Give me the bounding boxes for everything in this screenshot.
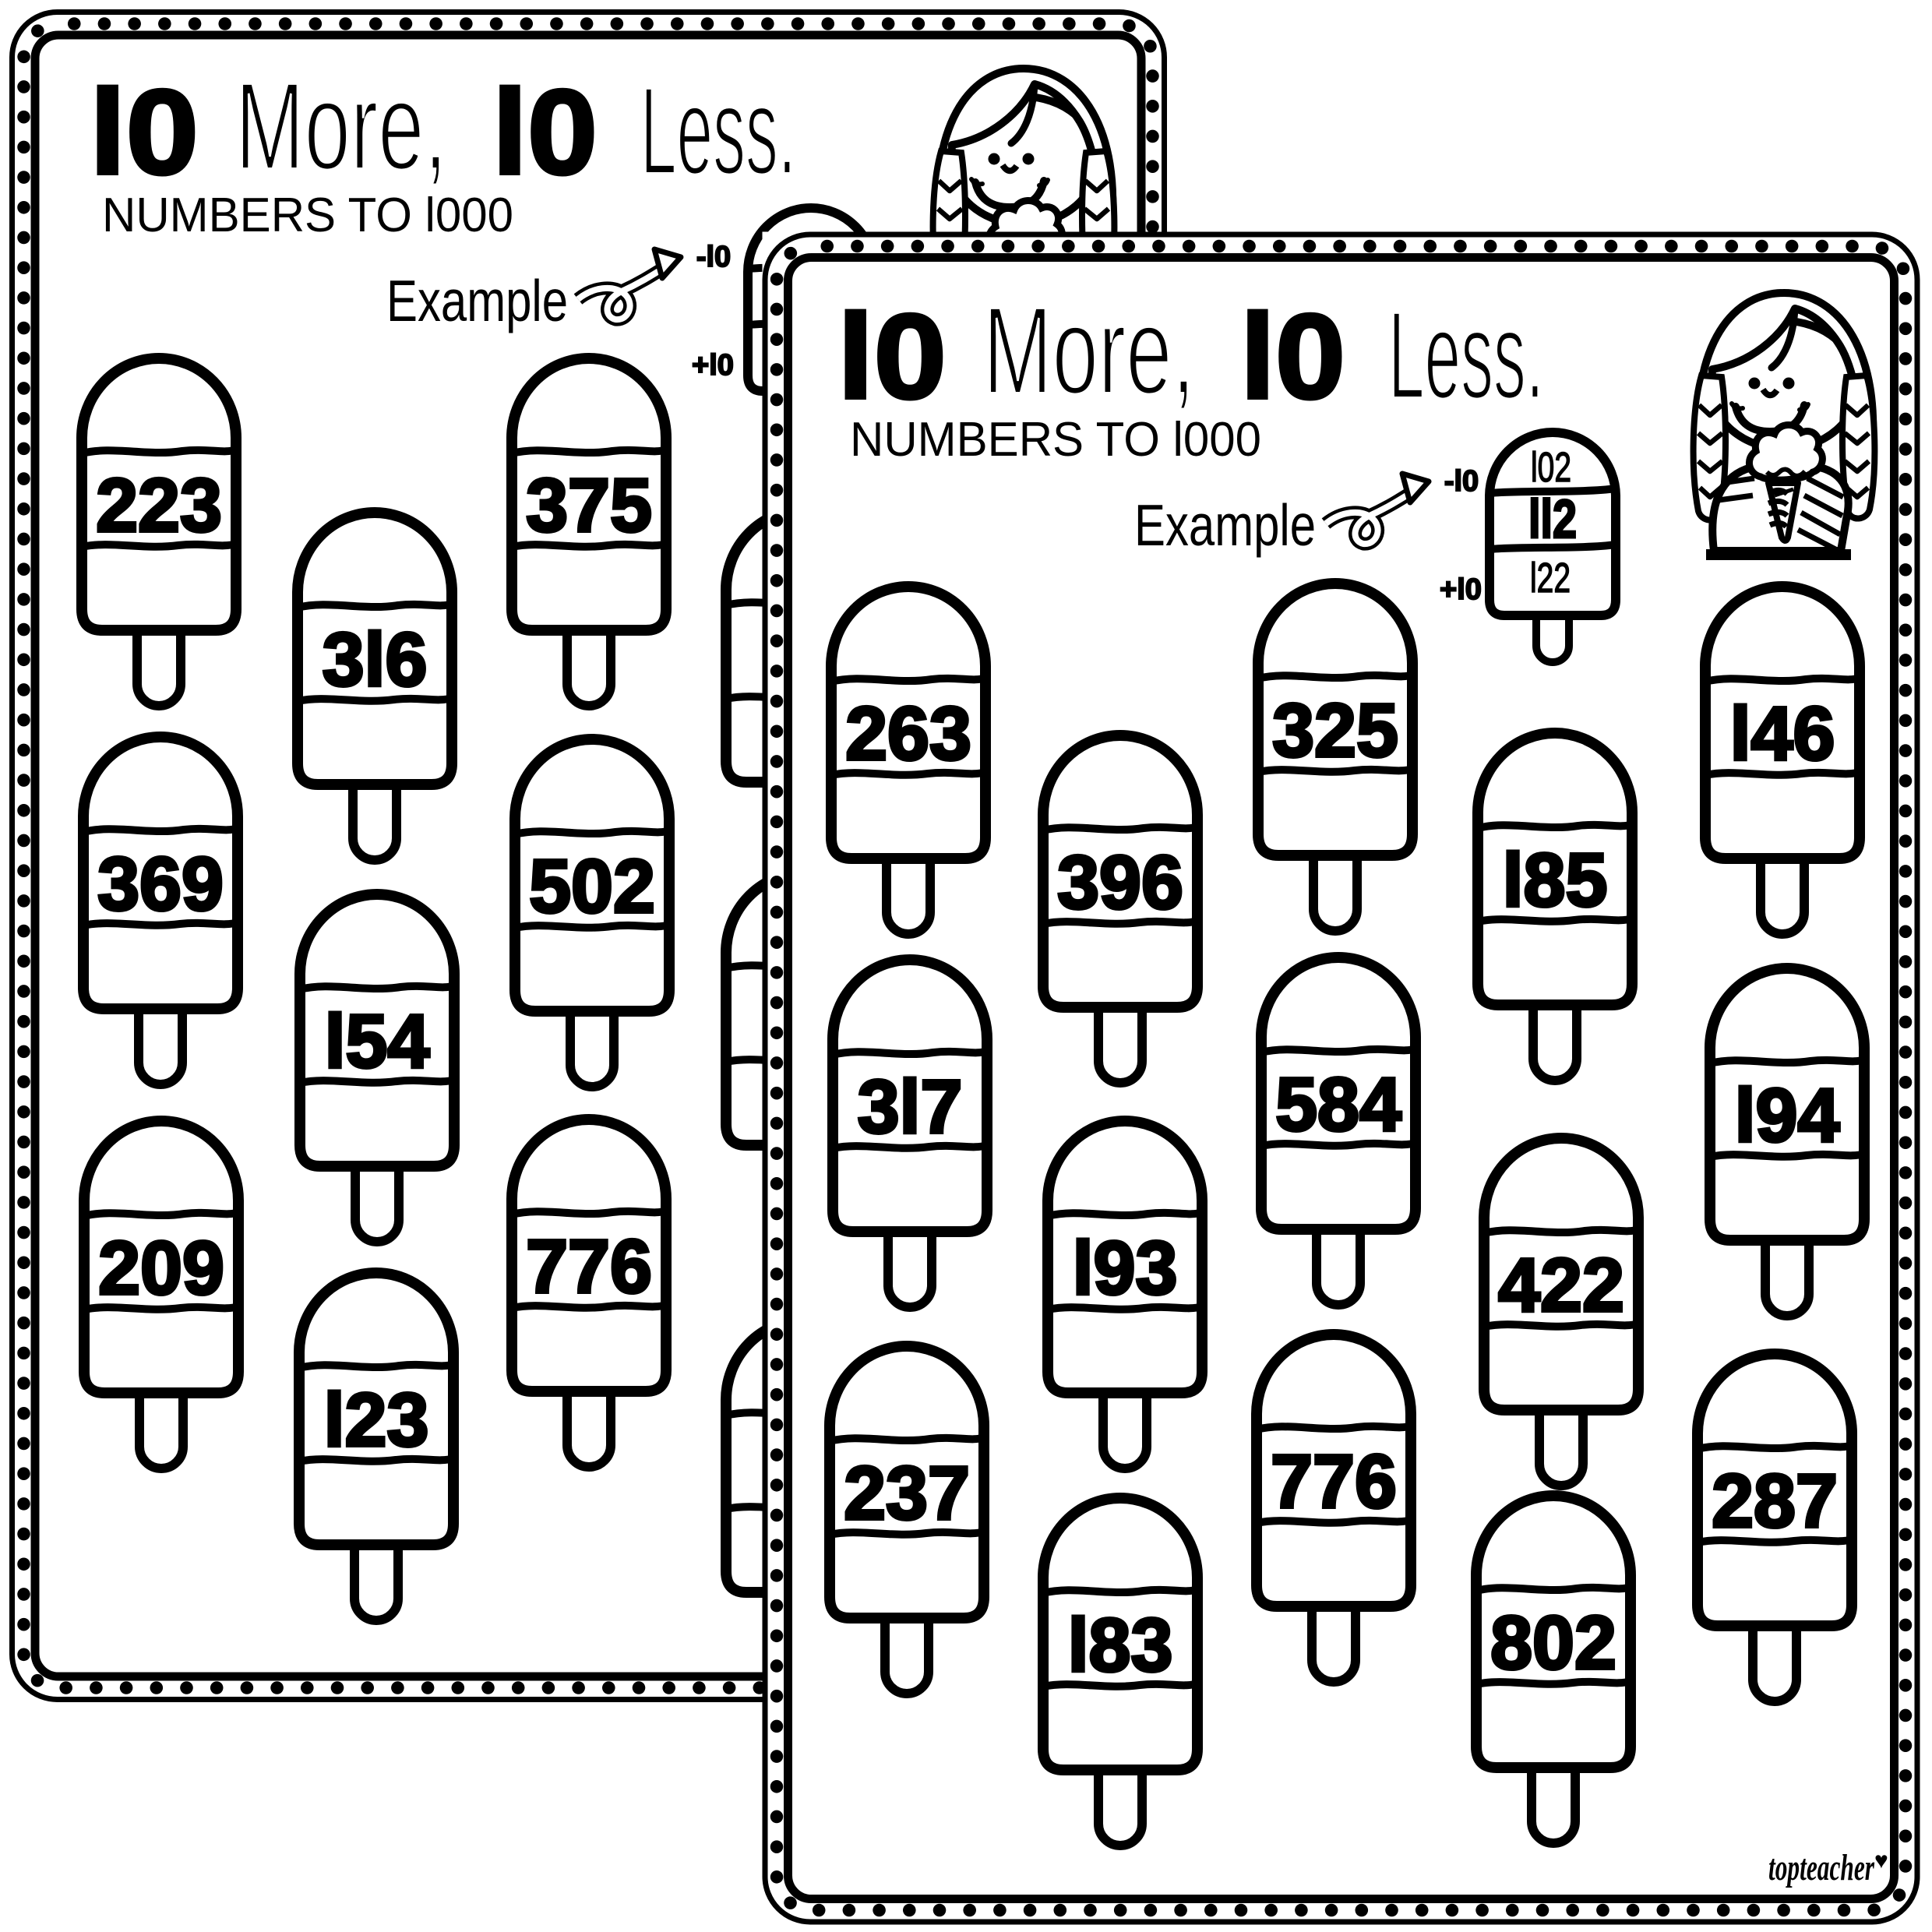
- svg-text:Less.: Less.: [640, 61, 796, 200]
- svg-text:-l0: -l0: [1444, 465, 1479, 498]
- svg-text:584: 584: [1275, 1062, 1401, 1147]
- svg-text:-l0: -l0: [696, 241, 731, 273]
- svg-text:+l0: +l0: [1440, 573, 1482, 606]
- svg-text:l54: l54: [325, 999, 430, 1084]
- svg-text:l23: l23: [324, 1377, 429, 1462]
- svg-text:Example: Example: [1134, 492, 1316, 558]
- svg-text:375: 375: [526, 463, 652, 548]
- svg-text:287: 287: [1712, 1458, 1838, 1543]
- svg-text:+l0: +l0: [692, 349, 734, 382]
- svg-text:3l7: 3l7: [858, 1064, 963, 1149]
- svg-text:l0: l0: [492, 65, 598, 199]
- svg-text:l22: l22: [1530, 555, 1571, 601]
- svg-text:3l6: 3l6: [323, 617, 428, 702]
- svg-text:l85: l85: [1503, 837, 1608, 922]
- svg-text:396: 396: [1057, 840, 1183, 925]
- svg-text:802: 802: [1490, 1600, 1616, 1685]
- svg-text:NUMBERS TO l000: NUMBERS TO l000: [850, 413, 1261, 467]
- svg-text:422: 422: [1498, 1243, 1624, 1327]
- svg-text:Less.: Less.: [1388, 285, 1544, 425]
- svg-text:l02: l02: [1531, 444, 1571, 491]
- svg-text:l83: l83: [1068, 1602, 1173, 1687]
- svg-text:l93: l93: [1073, 1225, 1178, 1310]
- svg-text:502: 502: [529, 844, 655, 929]
- svg-text:l0: l0: [90, 65, 199, 199]
- svg-text:More,: More,: [983, 280, 1195, 420]
- svg-text:l0: l0: [1240, 289, 1345, 424]
- svg-text:776: 776: [526, 1224, 652, 1309]
- svg-text:325: 325: [1272, 688, 1398, 773]
- svg-text:237: 237: [844, 1451, 970, 1535]
- svg-text:l46: l46: [1730, 691, 1835, 776]
- svg-text:l94: l94: [1735, 1073, 1840, 1158]
- svg-text:263: 263: [845, 691, 971, 776]
- svg-text:209: 209: [98, 1225, 224, 1310]
- svg-text:NUMBERS TO l000: NUMBERS TO l000: [102, 189, 513, 242]
- svg-text:l0: l0: [837, 289, 947, 424]
- svg-text:Example: Example: [386, 268, 568, 333]
- svg-text:ll2: ll2: [1528, 488, 1577, 549]
- svg-text:topteacher: topteacher: [1768, 1847, 1875, 1888]
- svg-text:776: 776: [1271, 1439, 1397, 1524]
- svg-text:369: 369: [97, 841, 224, 926]
- svg-text:♥: ♥: [1874, 1848, 1888, 1874]
- svg-text:More,: More,: [235, 56, 447, 196]
- svg-text:223: 223: [96, 463, 222, 548]
